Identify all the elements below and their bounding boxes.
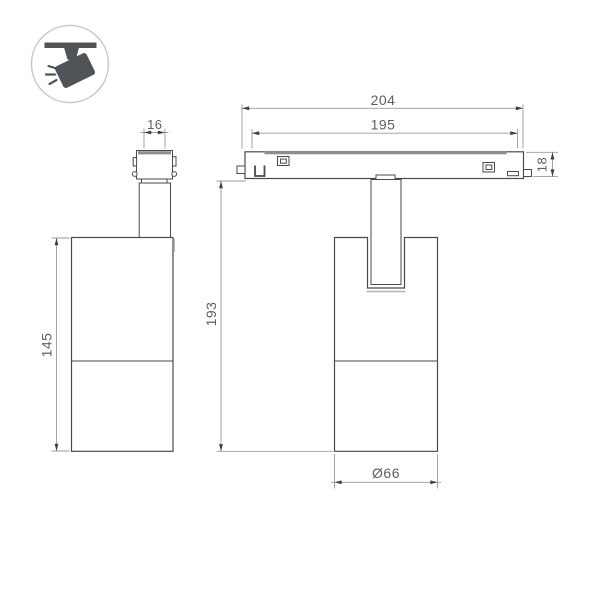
dim18-arrow-bottom — [551, 169, 555, 176]
dim193-label: 193 — [203, 302, 219, 327]
front-view — [237, 151, 532, 451]
front-track-endcap-right — [524, 170, 532, 177]
dim204-label: 204 — [371, 92, 396, 108]
dim18-arrow-top — [551, 152, 555, 159]
dimension-adapter-width: 16 — [141, 117, 169, 149]
side-adapter-clip-left — [133, 158, 136, 167]
side-stem — [139, 183, 170, 238]
side-adapter-top-strip — [138, 151, 171, 154]
dim195-arrow-right — [510, 131, 517, 135]
dimension-body-height: 145 — [39, 238, 70, 451]
dim195-label: 195 — [371, 117, 396, 133]
dimension-overall-height: 193 — [203, 181, 333, 451]
dim66-label: Ø66 — [372, 465, 400, 481]
track-spotlight-icon — [32, 26, 109, 103]
dim16-label: 16 — [147, 117, 162, 132]
icon-track-bar — [45, 43, 97, 49]
dim195-arrow-left — [252, 131, 259, 135]
front-track-endcap-left — [237, 166, 245, 174]
drawing-canvas: 16 145 204 — [0, 0, 600, 600]
front-track-slot-right-inner — [486, 165, 492, 170]
front-track-slot-left-inner — [281, 159, 287, 163]
dim193-arrow-bottom — [219, 444, 223, 451]
dim145-arrow-bottom — [55, 444, 59, 451]
side-adapter-clip-right — [173, 157, 177, 166]
side-adapter-hook-left — [132, 172, 137, 177]
side-adapter-hook-right — [172, 172, 177, 177]
side-adapter-block — [137, 151, 173, 180]
dimension-body-diameter: Ø66 — [331, 454, 441, 489]
front-stem — [371, 180, 401, 285]
dim193-arrow-top — [219, 181, 223, 188]
dim145-label: 145 — [39, 333, 55, 358]
side-view — [72, 151, 177, 452]
front-neck — [376, 175, 395, 180]
dim145-arrow-top — [55, 238, 59, 245]
side-body — [72, 238, 174, 452]
dim204-arrow-right — [516, 106, 523, 110]
side-neck — [142, 179, 168, 183]
dim204-arrow-left — [242, 106, 249, 110]
dim66-arrow-right — [430, 480, 437, 484]
front-track-vent-right — [508, 172, 519, 176]
dim66-arrow-left — [335, 480, 342, 484]
dimension-track-inner-length: 195 — [252, 117, 518, 149]
technical-drawing: 16 145 204 — [0, 0, 600, 600]
front-track-top-strip — [265, 151, 507, 154]
dim18-label: 18 — [535, 157, 550, 172]
